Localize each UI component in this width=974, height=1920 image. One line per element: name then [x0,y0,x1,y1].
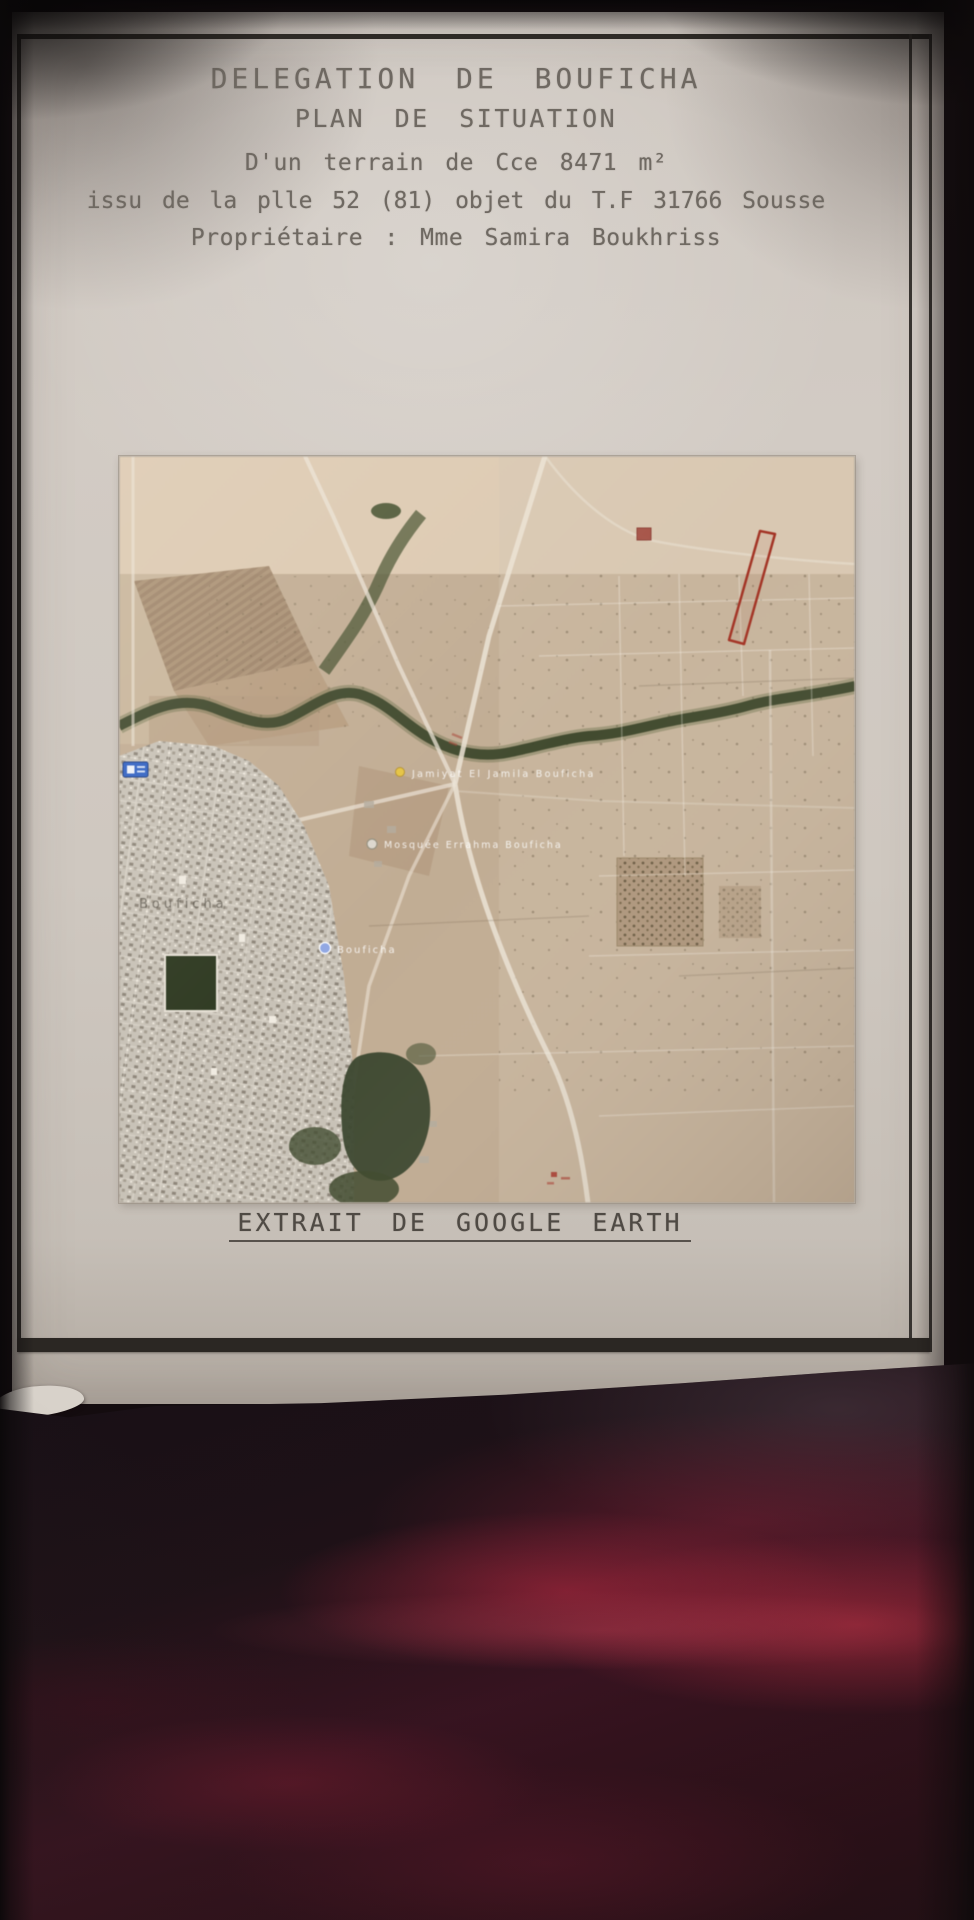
subtitle-line: PLAN DE SITUATION [0,104,922,133]
area-line: D'un terrain de Cce 8471 m² [0,150,922,176]
frame-bottom-band [18,1338,930,1352]
frame-right-outer-line [929,34,932,1352]
document-paper: DELEGATION DE BOUFICHA PLAN DE SITUATION… [12,12,944,1404]
map-caption-text: EXTRAIT DE GOOGLE EARTH [229,1208,690,1242]
frame-top-line [18,34,930,39]
parcel-line: issu de la plle 52 (81) objet du T.F 317… [0,188,922,214]
red-fabric-background [0,1352,974,1920]
owner-line: Propriétaire : Mme Samira Boukhriss [0,225,922,251]
map-caption: EXTRAIT DE GOOGLE EARTH [0,1208,926,1242]
google-earth-satellite-map: Jamiyat El Jamila Bouficha Mosquée Errah… [119,456,855,1203]
photo-of-site-plan: DELEGATION DE BOUFICHA PLAN DE SITUATION… [0,0,974,1920]
document-heading: DELEGATION DE BOUFICHA PLAN DE SITUATION… [0,62,922,251]
title-line: DELEGATION DE BOUFICHA [0,62,922,95]
